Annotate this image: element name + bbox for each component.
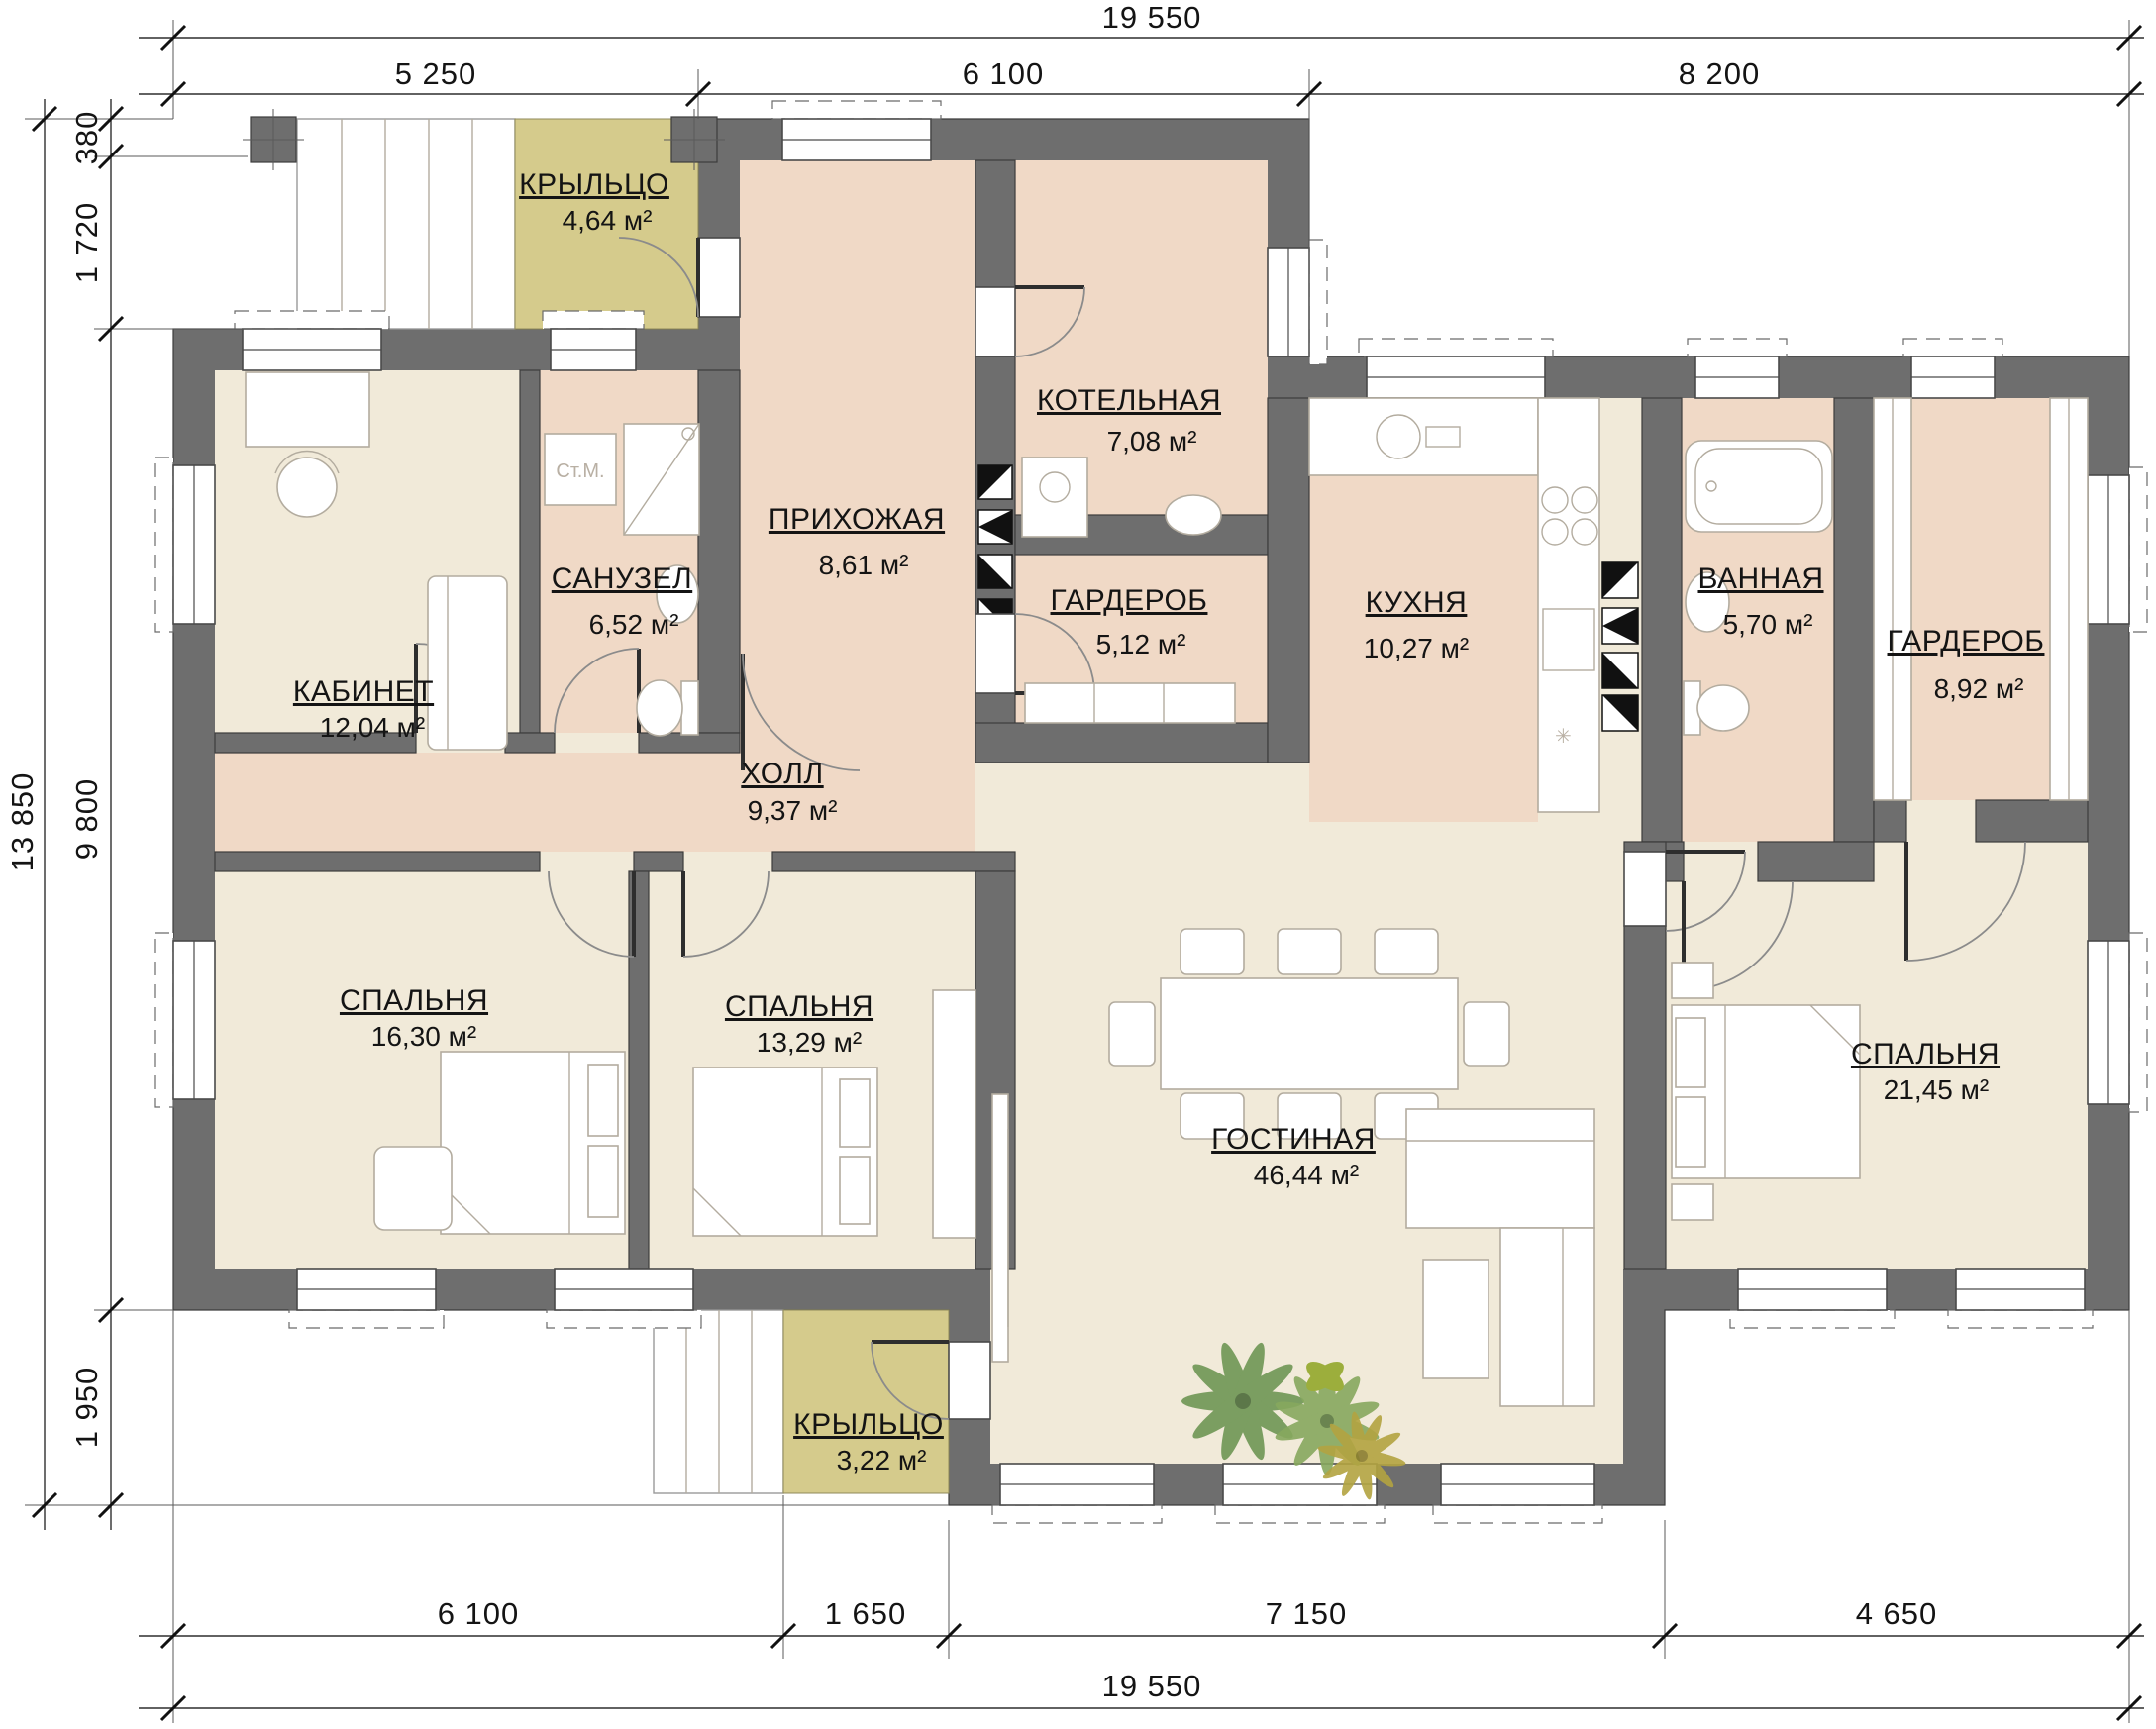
- kitchen-counter-icon: [1309, 398, 1538, 475]
- toilet-icon: [637, 680, 682, 736]
- room-area-bedroom-2: 13,29 м²: [757, 1027, 862, 1058]
- dim-left-total: 13 850: [5, 772, 40, 872]
- building: ✳: [155, 101, 2147, 1523]
- room-area-entry: 8,61 м²: [819, 550, 909, 580]
- room-area-cabinet: 12,04 м²: [320, 712, 425, 743]
- room-area-wardrobe-2: 8,92 м²: [1934, 673, 2024, 704]
- chair-icon: [1181, 929, 1244, 974]
- room-area-porch-bottom: 3,22 м²: [837, 1445, 927, 1475]
- kitchen-counter-icon: [1538, 398, 1599, 812]
- dim-left-seg-4: 1 950: [69, 1367, 104, 1449]
- sofa-icon: [1406, 1109, 1594, 1228]
- fixture-icon: [1166, 495, 1221, 535]
- dim-bottom-seg-2: 1 650: [825, 1596, 907, 1631]
- dim-left-seg-3: 9 800: [69, 778, 104, 861]
- dim-top-seg-3: 8 200: [1679, 56, 1761, 91]
- sofa-icon: [428, 576, 507, 750]
- boiler-icon: [1022, 458, 1087, 537]
- boiler-symbol: ✳: [1555, 726, 1572, 748]
- room-area-wardrobe-1: 5,12 м²: [1096, 629, 1186, 660]
- room-area-wc: 6,52 м²: [589, 609, 679, 640]
- room-label-bedroom-1: СПАЛЬНЯ: [340, 984, 488, 1017]
- dim-left-seg-1: 380: [69, 111, 104, 165]
- dim-left-seg-2: 1 720: [69, 202, 104, 284]
- bathtub-icon: [1686, 441, 1832, 532]
- porch-top-steps: [297, 119, 515, 329]
- room-area-kitchen: 10,27 м²: [1364, 633, 1469, 663]
- sofa-icon: [1500, 1228, 1594, 1406]
- dim-top-seg-1: 5 250: [395, 56, 477, 91]
- room-label-boiler: КОТЕЛЬНАЯ: [1037, 384, 1221, 417]
- dim-bottom-seg-1: 6 100: [438, 1596, 520, 1631]
- toilet-icon: [1697, 685, 1749, 731]
- nightstand-icon: [1672, 1184, 1713, 1220]
- chair-icon: [1278, 929, 1341, 974]
- room-label-wc: САНУЗЕЛ: [552, 562, 692, 595]
- ottoman-icon: [1423, 1260, 1489, 1378]
- desk-icon: [246, 372, 369, 447]
- chair-icon: [1464, 1002, 1509, 1066]
- nightstand-icon: [1672, 963, 1713, 998]
- toilet-tank-icon: [681, 681, 698, 735]
- dim-top-seg-2: 6 100: [963, 56, 1045, 91]
- room-label-cabinet: КАБИНЕТ: [293, 675, 434, 708]
- room-label-porch-bottom: КРЫЛЬЦО: [793, 1408, 944, 1441]
- room-label-bath: ВАННАЯ: [1697, 562, 1823, 595]
- porch-top: [243, 109, 725, 329]
- closet-icon: [1025, 683, 1235, 723]
- chair-icon: [1109, 1002, 1155, 1066]
- room-area-porch-top: 4,64 м²: [563, 205, 653, 236]
- room-label-wardrobe-1: ГАРДЕРОБ: [1051, 584, 1208, 617]
- room-area-bath: 5,70 м²: [1723, 609, 1813, 640]
- chair-icon: [1375, 929, 1438, 974]
- room-label-porch-top: КРЫЛЬЦО: [519, 168, 669, 201]
- dim-top-total: 19 550: [1102, 0, 1202, 35]
- armchair-icon: [374, 1147, 452, 1230]
- washing-machine-label: Ст.М.: [556, 460, 604, 482]
- room-label-living: ГОСТИНАЯ: [1211, 1123, 1376, 1156]
- closet-icon: [933, 990, 975, 1238]
- room-label-kitchen: КУХНЯ: [1366, 586, 1468, 619]
- room-label-entry: ПРИХОЖАЯ: [769, 503, 945, 536]
- chair-icon: [277, 458, 337, 517]
- room-label-bedroom-3: СПАЛЬНЯ: [1851, 1038, 2000, 1070]
- room-area-bedroom-3: 21,45 м²: [1884, 1074, 1989, 1105]
- dim-bottom-seg-4: 4 650: [1856, 1596, 1938, 1631]
- room-label-hall: ХОЛЛ: [741, 758, 823, 790]
- floor-plan-page: ✳: [0, 0, 2156, 1729]
- room-area-bedroom-1: 16,30 м²: [371, 1021, 476, 1052]
- room-area-boiler: 7,08 м²: [1107, 426, 1197, 457]
- dim-bottom-seg-3: 7 150: [1266, 1596, 1348, 1631]
- dim-bottom-total: 19 550: [1102, 1669, 1202, 1703]
- dining-table-icon: [1161, 978, 1458, 1089]
- room-area-hall: 9,37 м²: [748, 795, 838, 826]
- room-area-living: 46,44 м²: [1254, 1160, 1359, 1190]
- room-label-wardrobe-2: ГАРДЕРОБ: [1888, 625, 2045, 658]
- room-label-bedroom-2: СПАЛЬНЯ: [725, 990, 873, 1023]
- tv-icon: [992, 1094, 1008, 1362]
